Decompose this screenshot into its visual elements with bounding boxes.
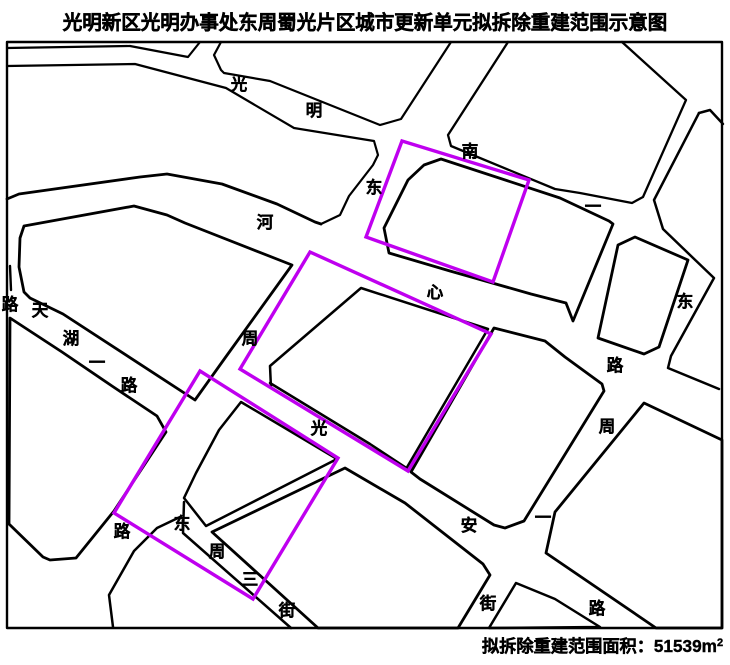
svg-text:周: 周 (599, 417, 616, 436)
svg-text:安: 安 (461, 515, 478, 535)
svg-text:周: 周 (242, 329, 259, 348)
svg-text:心: 心 (427, 283, 444, 302)
svg-text:路: 路 (2, 294, 19, 314)
svg-text:光: 光 (230, 74, 248, 94)
svg-text:路: 路 (121, 375, 138, 395)
svg-text:路: 路 (607, 355, 624, 375)
svg-text:光: 光 (310, 418, 328, 438)
svg-text:街: 街 (278, 600, 296, 620)
svg-text:天: 天 (32, 302, 49, 320)
svg-text:街: 街 (479, 593, 497, 613)
svg-text:三: 三 (242, 571, 259, 589)
svg-text:拟拆除重建范围面积：51539m2: 拟拆除重建范围面积：51539m2 (482, 636, 723, 656)
svg-text:河: 河 (257, 213, 274, 232)
svg-text:明: 明 (306, 101, 323, 120)
svg-text:一: 一 (585, 198, 602, 216)
svg-text:路: 路 (114, 521, 131, 541)
svg-text:路: 路 (589, 598, 606, 618)
svg-text:一: 一 (535, 509, 552, 527)
svg-text:湖: 湖 (63, 329, 80, 348)
svg-text:东: 东 (366, 177, 383, 197)
svg-text:东: 东 (677, 291, 694, 311)
svg-text:东: 东 (174, 513, 191, 533)
svg-text:光明新区光明办事处东周蜀光片区城市更新单元拟拆除重建范围示意: 光明新区光明办事处东周蜀光片区城市更新单元拟拆除重建范围示意图 (62, 11, 668, 34)
svg-text:一: 一 (89, 354, 106, 372)
svg-text:南: 南 (462, 141, 479, 161)
svg-text:周: 周 (209, 542, 226, 561)
